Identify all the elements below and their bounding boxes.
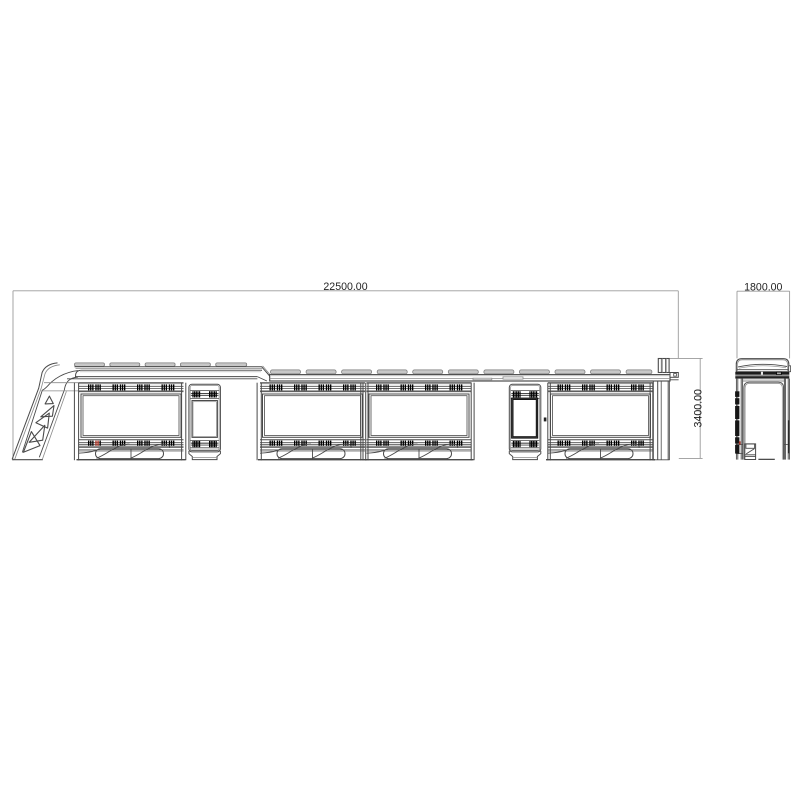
svg-text:22500.00: 22500.00 — [323, 281, 367, 293]
svg-text:1800.00: 1800.00 — [744, 282, 782, 294]
svg-text:3400.00: 3400.00 — [693, 389, 705, 427]
